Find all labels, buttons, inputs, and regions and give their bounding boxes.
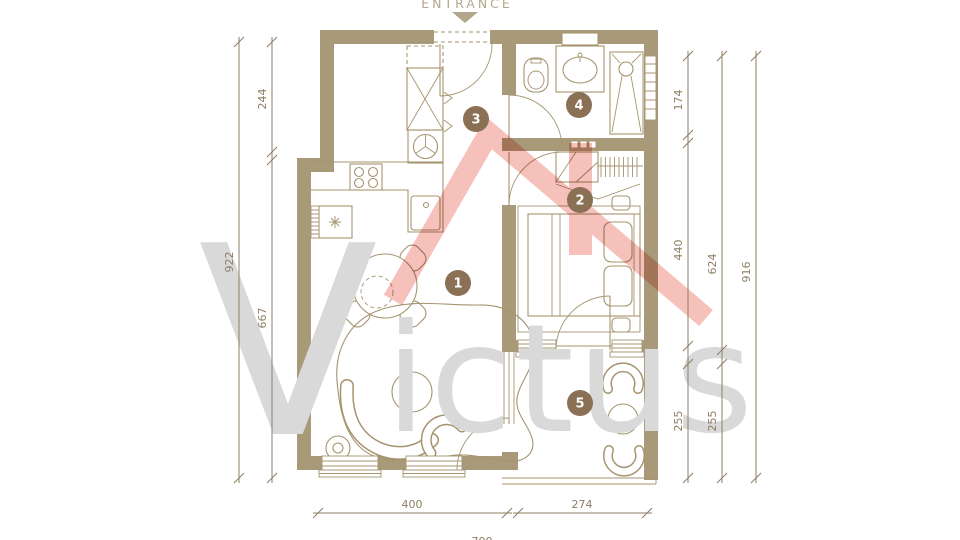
entrance-marker: ENTRANCE [421, 0, 513, 23]
nightstand [612, 196, 630, 210]
floor-plan-canvas: V ictus 1 2 3 4 5 [0, 0, 960, 540]
room-badge-1: 1 [445, 270, 471, 296]
logo-watermark [393, 133, 706, 318]
logo-peak [393, 133, 706, 318]
dim-274: 274 [572, 498, 593, 511]
bathroom-sink [556, 33, 604, 92]
watermark: V ictus [198, 191, 756, 497]
watermark-initial: V [198, 191, 379, 497]
dim-922: 922 [223, 252, 236, 273]
entrance-arrow-icon [452, 12, 478, 23]
top-wall-left [320, 30, 434, 44]
washing-machine [408, 130, 443, 163]
dim-255-inner: 255 [672, 411, 685, 432]
room-5-number: 5 [575, 397, 584, 412]
dim-255-middle: 255 [706, 411, 719, 432]
bathroom [509, 33, 656, 148]
dim-bottom: 400 274 700 [313, 498, 652, 540]
room-2-number: 2 [575, 194, 584, 209]
toilet [524, 58, 548, 92]
left-wall-upper [320, 30, 334, 162]
dim-400: 400 [402, 498, 423, 511]
dim-244: 244 [256, 89, 269, 110]
balcony-slab-edge [502, 478, 656, 484]
entrance-label: ENTRANCE [421, 0, 513, 11]
entrance-door-swing [440, 44, 492, 96]
dim-624: 624 [706, 254, 719, 275]
partition-hall-bath [502, 44, 516, 95]
room-badge-4: 4 [566, 92, 592, 118]
shower [610, 52, 643, 134]
dim-667: 667 [256, 308, 269, 329]
room-3-number: 3 [471, 113, 480, 128]
hangers [601, 157, 637, 177]
hall-upper-cabinet [407, 46, 443, 68]
dim-174: 174 [672, 90, 685, 111]
hall-wardrobe [407, 68, 443, 130]
room-badge-3: 3 [463, 106, 489, 132]
room-1-number: 1 [453, 277, 462, 292]
floor-plan-screenshot: V ictus 1 2 3 4 5 [0, 0, 960, 540]
room-badge-2: 2 [567, 187, 593, 213]
dim-916: 916 [740, 262, 753, 283]
dim-440: 440 [672, 240, 685, 261]
stove [350, 164, 382, 190]
room-4-number: 4 [574, 99, 583, 114]
towel-radiator [645, 56, 656, 120]
dim-700-total: 700 [472, 535, 493, 540]
hallway-furniture [407, 46, 452, 163]
room-badge-5: 5 [567, 390, 593, 416]
wardrobe-door-marks [444, 92, 452, 132]
